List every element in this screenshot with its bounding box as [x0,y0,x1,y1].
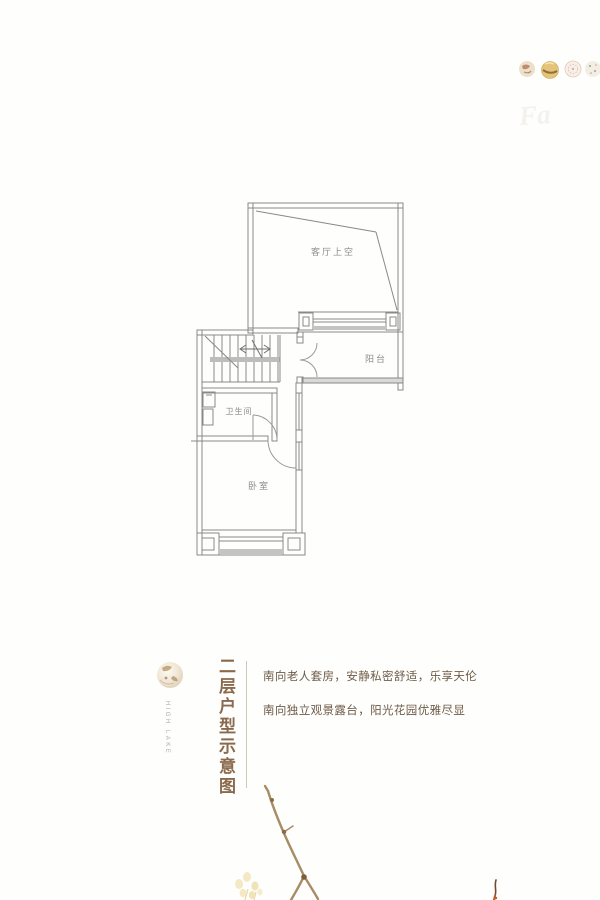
watermark-text: Fa [518,99,552,132]
floor-plan-drawing [0,0,600,900]
room-label-bedroom: 卧室 [229,479,289,492]
pale-ring-seal-icon [565,61,581,77]
brand-logo-icon [157,662,183,688]
balcony-french-door [300,343,317,377]
red-twig-illustration [494,880,497,900]
description-line-1: 南向老人套房，安静私密舒适，乐享天伦 [263,668,477,684]
description-line-2: 南向独立观景露台，阳光花园优雅尽显 [263,702,465,718]
stair-direction-arrow [240,340,270,358]
gold-seal-2-icon [542,62,559,79]
blossom-illustration [235,872,263,900]
room-label-living-void: 客厅上空 [303,245,363,258]
floor-plan-walls [191,203,403,555]
page-title: 二层户型示意图 [213,657,238,802]
staircase [202,335,280,382]
brand-vertical-text: HIGH LAKE [164,693,170,763]
balcony-top-window-band [298,312,403,332]
title-divider [246,661,247,788]
page: 客厅上空 阳台 卫生间 卧室 Fa HIGH LAKE 二层户型示意图 南向老人… [0,0,600,900]
gold-seal-1-icon [519,61,535,77]
bedroom-window-band [197,530,305,555]
void-opening-outline [256,211,397,310]
bedroom-door [268,440,296,468]
medallion-row [519,61,600,79]
room-label-balcony: 阳台 [356,352,396,365]
room-label-bathroom: 卫生间 [209,406,269,417]
speckled-seal-icon [585,61,600,77]
branch-illustration [265,786,318,900]
